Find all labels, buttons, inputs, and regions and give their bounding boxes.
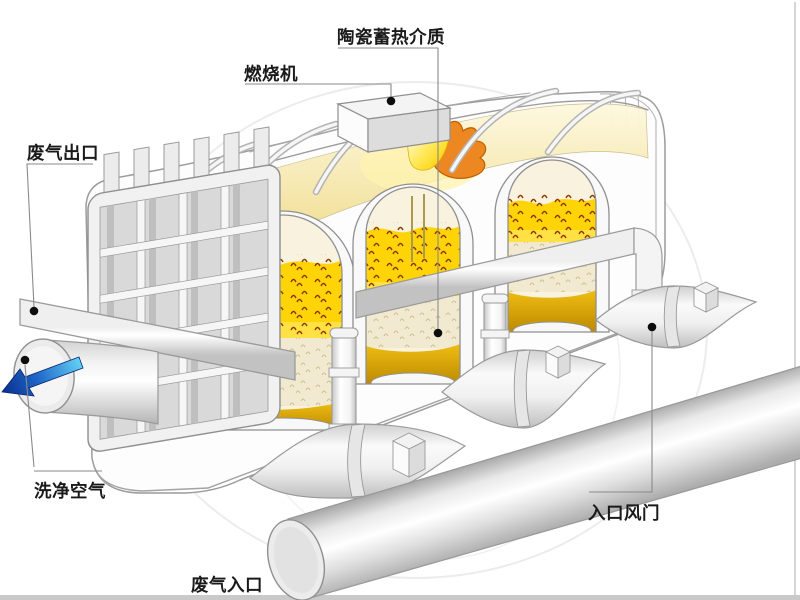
label-clean-air: 洗净空气 <box>34 481 106 501</box>
diagram-canvas: 陶瓷蓄热介质 燃烧机 废气出口 洗净空气 入口风门 废气入口 <box>0 0 800 600</box>
dot-burner <box>387 97 396 106</box>
dot-ceramic-media <box>434 329 443 338</box>
label-gas-inlet: 废气入口 <box>191 575 263 595</box>
dot-clean-air <box>21 356 30 365</box>
label-ceramic-media: 陶瓷蓄热介质 <box>337 27 445 47</box>
leader-exhaust-outlet <box>27 164 93 307</box>
bottom-edge-strip <box>0 595 800 600</box>
rto-cutaway-diagram: 陶瓷蓄热介质 燃烧机 废气出口 洗净空气 入口风门 废气入口 <box>0 0 800 600</box>
label-exhaust-outlet: 废气出口 <box>27 143 99 163</box>
damper-mount-block-3 <box>694 282 718 312</box>
damper-mount-block-2 <box>546 346 570 378</box>
dot-exhaust-outlet <box>30 307 39 316</box>
damper-mount-block-1 <box>393 433 425 477</box>
label-burner: 燃烧机 <box>244 64 298 84</box>
label-inlet-damper: 入口风门 <box>588 503 660 523</box>
dot-inlet-damper <box>648 323 657 332</box>
